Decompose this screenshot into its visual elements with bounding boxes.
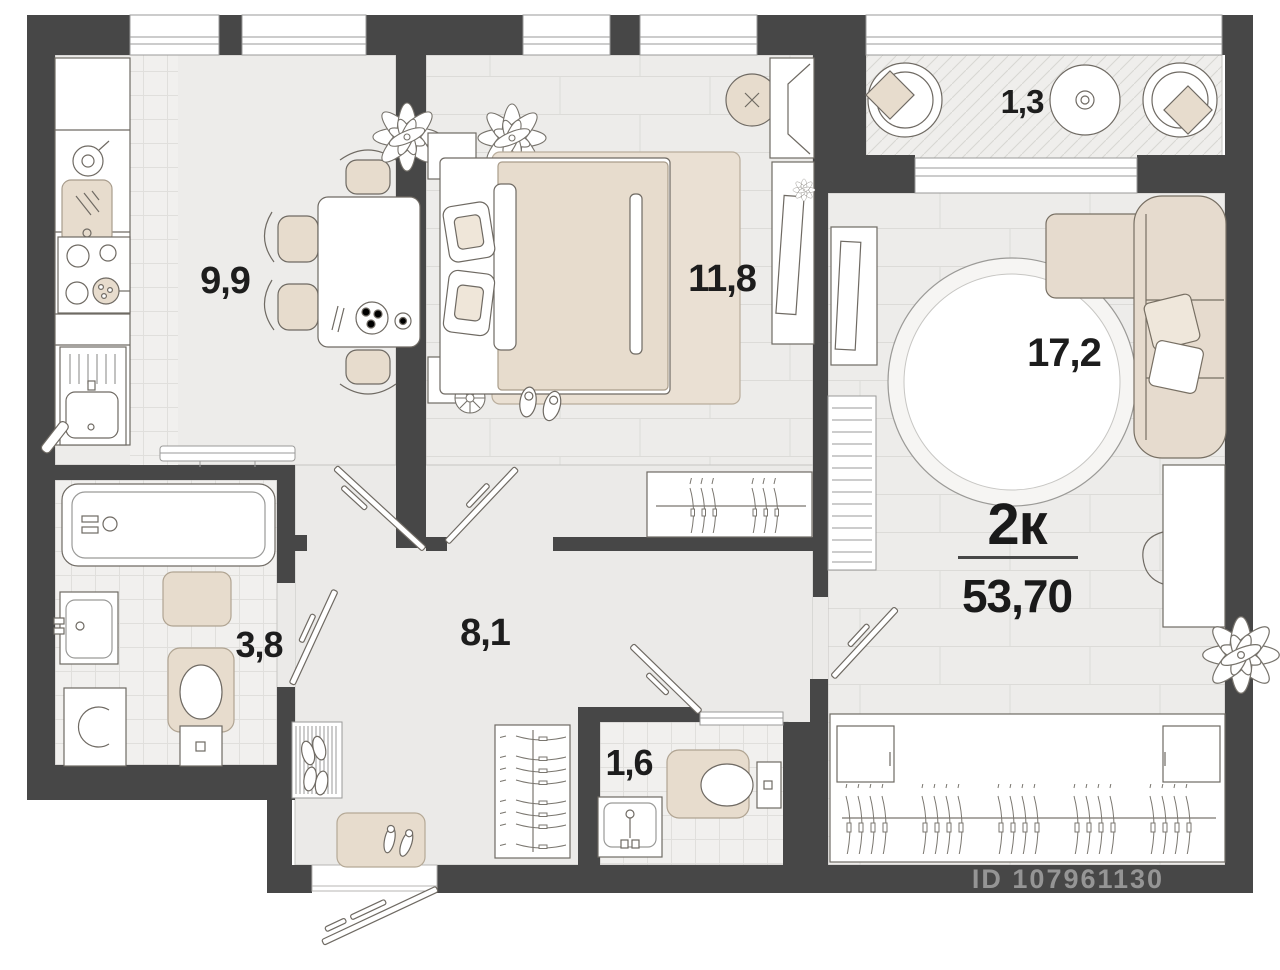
kitchen-window-icon [130,15,366,55]
tv-console-icon [831,227,877,365]
bedroom-window-icon [523,15,757,55]
balcony-table-icon [1050,65,1120,135]
shoe-rack-icon [292,722,342,798]
room-label-bathroom: 3,8 [235,624,282,665]
cutting-board-icon [62,180,112,244]
stove-icon [58,237,130,313]
kitchen-tile-strip [130,55,178,465]
room-label-bedroom: 11,8 [688,258,756,300]
floor-plan-page: 9,9 11,8 1,3 17,2 3,8 8,1 1,6 2к 53,70 I… [0,0,1280,970]
doormat-icon [337,813,425,867]
wardrobe-icon [830,714,1225,862]
bath-mat-icon [163,572,231,626]
apartment-type-label: 2к [987,492,1048,557]
bathroom-sink-icon [54,592,118,664]
flower-icon [793,179,815,201]
bathtub-icon [62,484,275,566]
watermark-id: ID 107961130 [972,864,1164,894]
balcony-door-window-icon [915,158,1137,193]
washing-machine-icon [64,688,126,766]
plant-icon [1203,617,1280,694]
closet-icon [647,472,812,537]
vanity-icon [770,58,814,158]
room-label-hallway: 8,1 [460,612,511,654]
entry-threshold [312,865,437,891]
room-label-kitchen: 9,9 [200,260,250,302]
floor-plan: 9,9 11,8 1,3 17,2 3,8 8,1 1,6 2к 53,70 I… [0,0,1280,970]
total-area-label: 53,70 [962,570,1072,622]
wc-transom-icon [700,712,783,725]
shelf-icon [828,396,876,570]
room-label-living: 17,2 [1027,331,1101,375]
balcony-chair-icon [1143,63,1217,137]
hall-wardrobe-icon [495,725,570,858]
wc-sink-icon [598,797,662,857]
room-label-wc: 1,6 [605,742,652,783]
balcony-glazing-icon [866,15,1222,55]
room-label-balcony: 1,3 [1001,83,1045,120]
title-divider [958,556,1078,559]
